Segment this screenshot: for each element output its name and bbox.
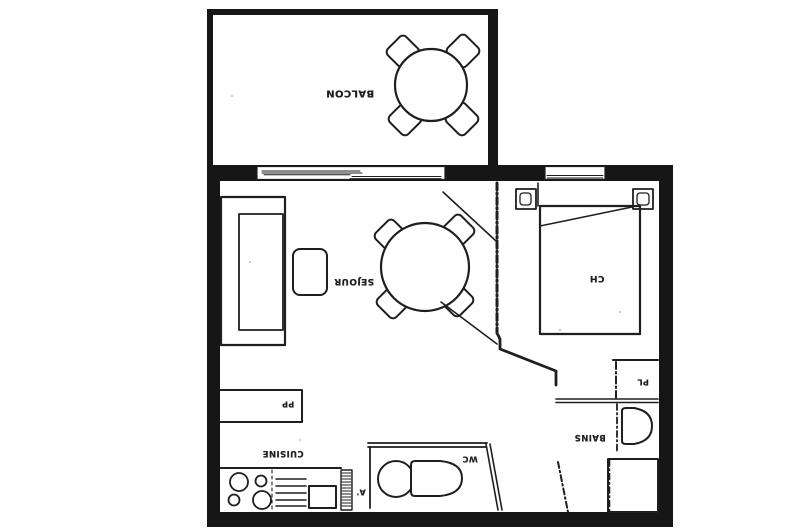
closet-pl-outline bbox=[613, 360, 658, 399]
sliding-door bbox=[257, 167, 445, 180]
label-bedroom: CH bbox=[590, 273, 605, 283]
coffee-table bbox=[293, 249, 327, 295]
bathroom-entry-line bbox=[558, 462, 568, 512]
balcony-wall-top bbox=[207, 9, 498, 15]
label-kitchen: CUISINE bbox=[262, 448, 303, 458]
kitchen-sink bbox=[309, 486, 336, 508]
label-section-marker: A' bbox=[356, 488, 365, 497]
stove-burners bbox=[229, 473, 272, 509]
balcony-wall-left bbox=[207, 9, 213, 169]
floor-plan: BALCON SEJOUR CH BAINS WC CUISINE PL PP … bbox=[0, 0, 800, 532]
dining-table bbox=[381, 223, 469, 311]
label-wc: WC bbox=[462, 455, 478, 464]
washbasin bbox=[622, 408, 652, 444]
main-wall-bottom bbox=[207, 512, 673, 527]
bedroom-window bbox=[545, 167, 605, 180]
label-closet-pp: PP bbox=[282, 400, 295, 409]
toilet-bowl bbox=[411, 461, 462, 496]
bathroom-top-wall bbox=[556, 399, 658, 403]
main-wall-right bbox=[659, 165, 673, 527]
main-wall-left bbox=[207, 165, 220, 527]
label-bathroom: BAINS bbox=[574, 432, 605, 442]
door-leaf-hall bbox=[441, 302, 497, 344]
nightstand-left bbox=[516, 189, 536, 209]
label-closet-pl: PL bbox=[637, 378, 649, 387]
drainboard bbox=[276, 479, 306, 506]
balcony-table bbox=[395, 49, 467, 121]
shower bbox=[608, 459, 658, 512]
label-balcony: BALCON bbox=[326, 88, 374, 99]
sofa bbox=[221, 197, 285, 345]
hatched-partition bbox=[341, 470, 352, 510]
toilet-tank bbox=[378, 461, 414, 497]
hall-diagonal-wall bbox=[497, 333, 556, 385]
floor-plan-drawing bbox=[0, 0, 800, 532]
balcony-wall-right bbox=[488, 9, 498, 169]
label-living: SEJOUR bbox=[334, 276, 374, 286]
bed bbox=[538, 183, 640, 334]
